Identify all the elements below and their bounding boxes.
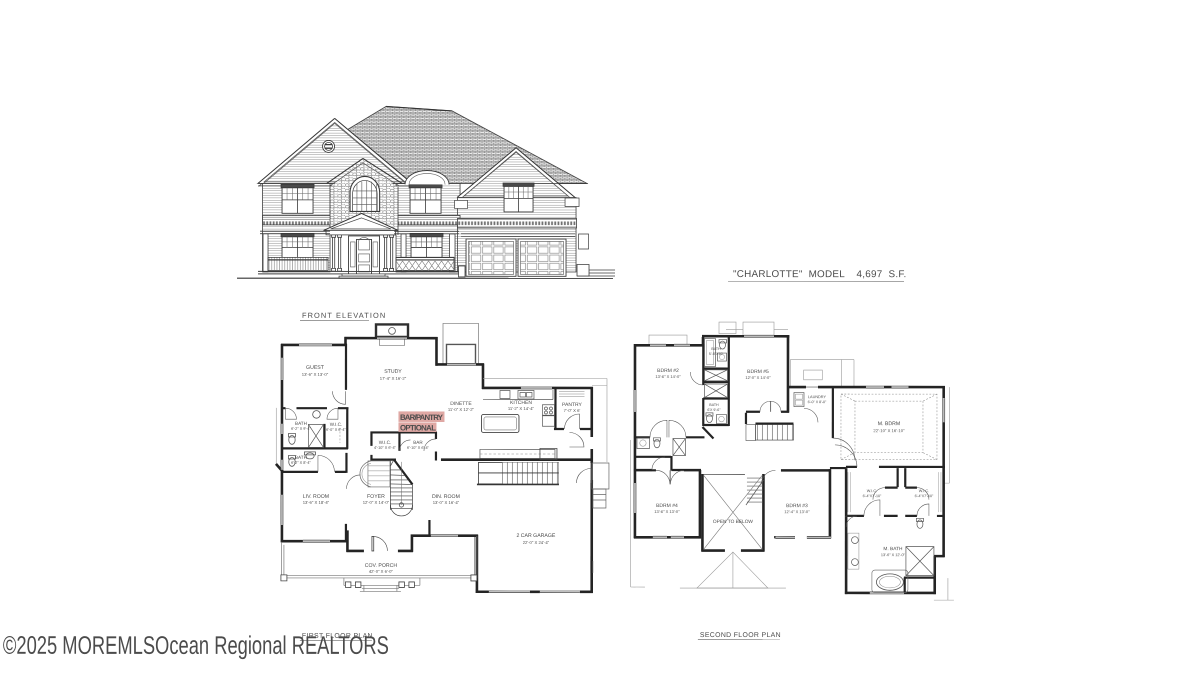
svg-text:GUEST: GUEST [306, 365, 325, 371]
svg-text:"CHARLOTTE" MODEL 4,697 S: "CHARLOTTE" MODEL 4,697 S.F. [733, 269, 907, 280]
svg-text:OPEN TO BELOW: OPEN TO BELOW [713, 519, 754, 525]
svg-text:22'-0" X 24'-4": 22'-0" X 24'-4" [523, 540, 550, 545]
svg-text:6'-2" X 8'-4": 6'-2" X 8'-4" [291, 461, 311, 465]
svg-text:BATH: BATH [709, 403, 719, 407]
svg-text:6'-0" X 8'-0": 6'-0" X 8'-0" [808, 400, 827, 404]
svg-text:42'-0" X 6'-0": 42'-0" X 6'-0" [369, 569, 394, 574]
svg-text:6'-4"X7'-10": 6'-4"X7'-10" [915, 494, 934, 498]
svg-text:BATH: BATH [295, 421, 307, 426]
svg-text:W.I.C.: W.I.C. [919, 489, 929, 493]
svg-text:6'-10" X 6'-4": 6'-10" X 6'-4" [407, 446, 430, 450]
svg-text:12'-0" X 14'-0": 12'-0" X 14'-0" [363, 500, 390, 505]
svg-text:W.I.C.: W.I.C. [867, 489, 877, 493]
svg-text:M. BDRM: M. BDRM [878, 421, 900, 427]
svg-text:FRONT ELEVATION: FRONT ELEVATION [302, 311, 386, 320]
svg-text:13'-6" X 18'-4": 13'-6" X 18'-4" [303, 500, 330, 505]
svg-text:STUDY: STUDY [384, 369, 402, 375]
svg-text:6'-2" X 9'-4": 6'-2" X 9'-4" [291, 427, 311, 431]
svg-text:6'X 9'-6": 6'X 9'-6" [707, 408, 721, 412]
svg-text:LAUNDRY: LAUNDRY [808, 395, 827, 399]
svg-text:7'-0" X 6': 7'-0" X 6' [564, 408, 581, 413]
svg-text:M. BATH: M. BATH [883, 546, 903, 552]
svg-text:6'-0" X 6'-4": 6'-0" X 6'-4" [326, 428, 346, 432]
svg-text:12'-4" X 13'-0": 12'-4" X 13'-0" [784, 509, 810, 514]
svg-text:13'-6" X 13'-0": 13'-6" X 13'-0" [654, 509, 680, 514]
svg-text:6'-4"X7'-10": 6'-4"X7'-10" [863, 494, 882, 498]
svg-text:W.I.C.: W.I.C. [379, 440, 392, 445]
svg-text:©2025 MOREMLSOcean Regional RE: ©2025 MOREMLSOcean Regional REALTORS [3, 632, 389, 660]
svg-text:BAR/PANTRY: BAR/PANTRY [400, 413, 444, 422]
svg-text:22'-10" X 16'-10": 22'-10" X 16'-10" [873, 428, 905, 433]
svg-text:13'-6" X 14'-0": 13'-6" X 14'-0" [655, 374, 681, 379]
svg-text:BATH: BATH [295, 455, 307, 460]
svg-text:11'-2" X 14'-4": 11'-2" X 14'-4" [508, 406, 535, 411]
svg-text:BATH: BATH [711, 347, 721, 351]
svg-text:4'-10" X 6'-4": 4'-10" X 6'-4" [374, 446, 397, 450]
svg-text:2 CAR GARAGE: 2 CAR GARAGE [516, 533, 555, 539]
svg-text:12'-0" X 14'-0": 12'-0" X 14'-0" [745, 375, 771, 380]
svg-text:W.I.C.: W.I.C. [330, 422, 343, 427]
svg-text:17'-4" X 16'-2": 17'-4" X 16'-2" [380, 376, 407, 381]
svg-text:11'-0" X 12'-2": 11'-0" X 12'-2" [448, 407, 475, 412]
svg-text:OPTIONAL: OPTIONAL [400, 423, 436, 432]
svg-text:BAR: BAR [413, 440, 423, 445]
svg-text:13'-6" X 13'-0": 13'-6" X 13'-0" [302, 372, 329, 377]
svg-text:5'-8"X10': 5'-8"X10' [709, 352, 724, 356]
svg-text:SECOND FLOOR PLAN: SECOND FLOOR PLAN [700, 632, 781, 639]
svg-text:13'-0" X 16'-4": 13'-0" X 16'-4" [433, 500, 460, 505]
svg-text:13'-6" X 12'-0": 13'-6" X 12'-0" [881, 553, 906, 557]
